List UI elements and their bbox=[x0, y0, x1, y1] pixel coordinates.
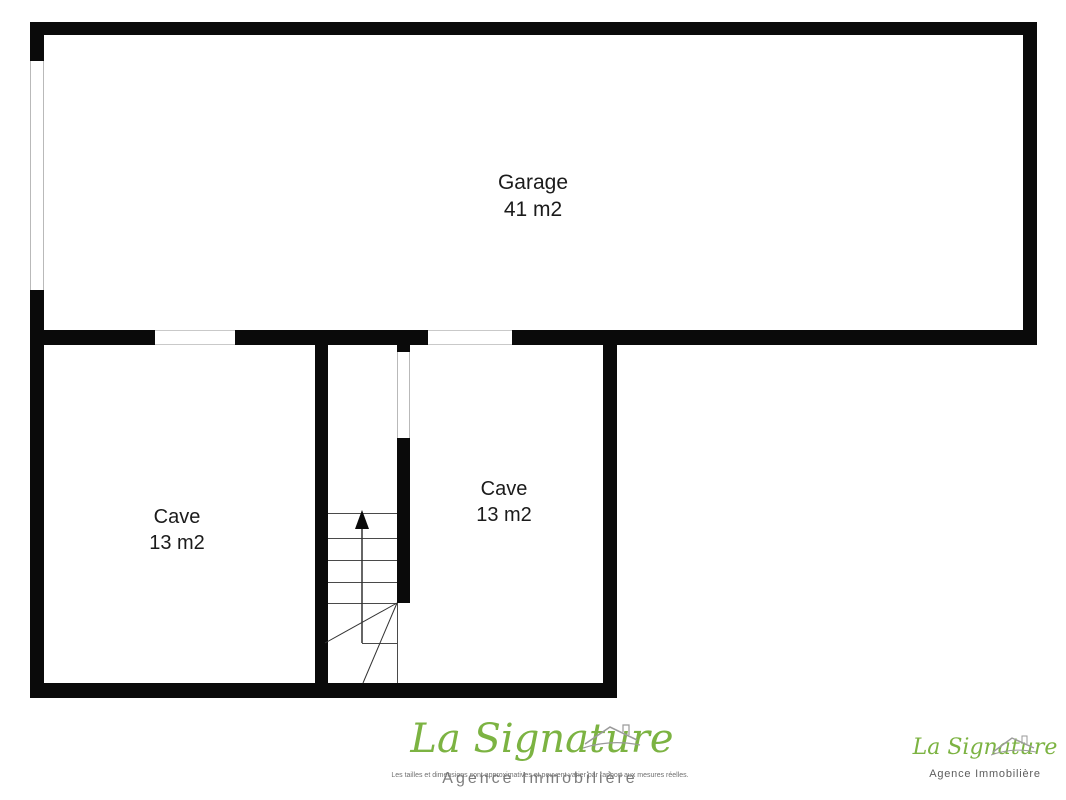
cave-right-wall bbox=[603, 345, 617, 698]
garage-left-wall-upper bbox=[30, 22, 44, 61]
garage-bottom-wall-segment-b bbox=[235, 330, 428, 345]
opening-garage-cave-right bbox=[428, 330, 512, 345]
room-name: Cave bbox=[424, 476, 584, 502]
brand-script-corner: La Signature bbox=[905, 735, 1065, 760]
house-icon bbox=[583, 722, 641, 750]
floor-plan: Garage 41 m2 Cave 13 m2 Cave 13 m2 La Si… bbox=[0, 0, 1066, 800]
room-name: Cave bbox=[97, 504, 257, 530]
garage-right-wall bbox=[1023, 22, 1037, 345]
garage-left-window bbox=[30, 61, 44, 290]
garage-top-wall bbox=[30, 22, 1037, 35]
brand-subtitle-corner: Agence Immobilière bbox=[905, 768, 1065, 780]
house-icon bbox=[991, 734, 1037, 756]
room-area: 41 m2 bbox=[433, 196, 633, 223]
garage-bottom-wall-segment-c bbox=[512, 330, 1037, 345]
stair-door-opening bbox=[397, 352, 410, 438]
stair-direction-arrow bbox=[315, 500, 415, 690]
brand-script-center: La Signature bbox=[392, 716, 692, 762]
room-area: 13 m2 bbox=[424, 502, 584, 528]
room-label-cave-right: Cave 13 m2 bbox=[424, 476, 584, 528]
room-label-garage: Garage 41 m2 bbox=[433, 169, 633, 223]
opening-garage-cave-left bbox=[155, 330, 235, 345]
left-wall-lower bbox=[30, 290, 44, 698]
stair-right-wall-stub bbox=[397, 345, 410, 352]
room-label-cave-left: Cave 13 m2 bbox=[97, 504, 257, 556]
garage-bottom-wall-segment-a bbox=[30, 330, 155, 345]
room-name: Garage bbox=[433, 169, 633, 196]
brand-disclaimer: Les tailles et dimensions sont approxima… bbox=[340, 772, 740, 779]
room-area: 13 m2 bbox=[97, 530, 257, 556]
